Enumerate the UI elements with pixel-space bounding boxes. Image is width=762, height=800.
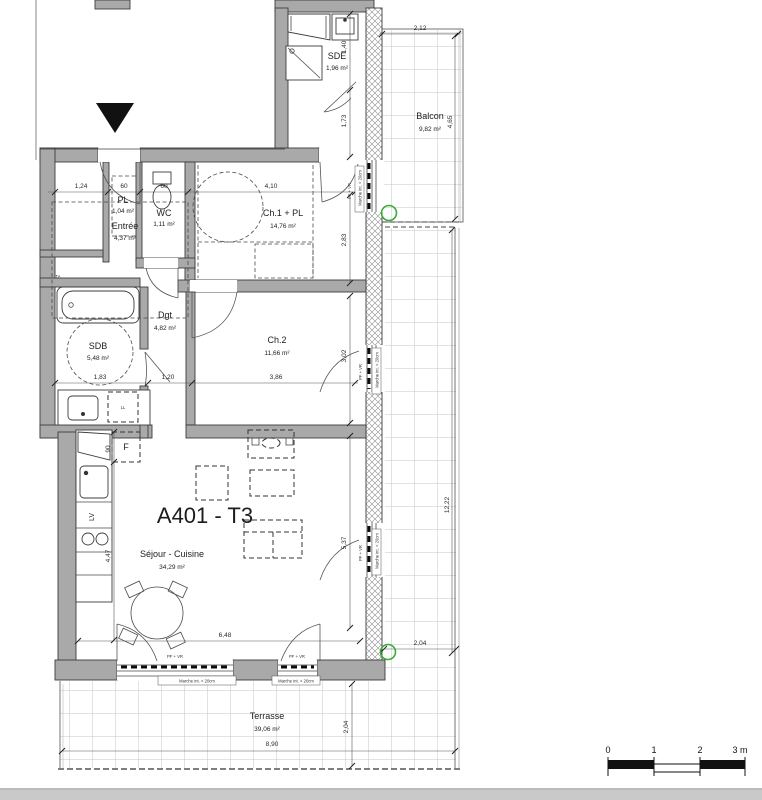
svg-text:Marche int. < 20cm: Marche int. < 20cm	[358, 170, 363, 206]
dimension-label: 6,48	[219, 632, 232, 639]
shower	[286, 46, 322, 80]
wc-door	[146, 268, 178, 298]
room-sdb: SDB 5,48 m²	[87, 341, 110, 362]
window-type-label: PF + VR	[289, 654, 305, 659]
dimension-label: 1,83	[94, 374, 107, 381]
ch2-french-window-swing	[320, 351, 359, 392]
svg-text:SDB: SDB	[89, 341, 108, 351]
svg-text:5,48 m²: 5,48 m²	[87, 355, 110, 362]
scale-label: 0	[605, 745, 610, 755]
dimension-label: 2,12	[414, 25, 427, 32]
dimension-label: 60	[160, 183, 168, 190]
room-wc: WC 1,11 m²	[153, 208, 175, 228]
dimension-label: 1,20	[162, 374, 175, 381]
sdb-washbasin	[58, 390, 150, 425]
step-label: Marche int. < 20cm	[272, 676, 320, 685]
svg-text:14,76 m²: 14,76 m²	[270, 223, 296, 230]
dimension-label: 4,65	[447, 115, 454, 128]
scale-label: 3 m	[732, 745, 747, 755]
entrance-arrow-icon	[96, 103, 134, 133]
dimension-label: 12,22	[444, 496, 451, 513]
dimension-label: 4,10	[265, 183, 278, 190]
armchair	[196, 466, 228, 500]
step-label: Marche int. < 20cm	[355, 166, 364, 212]
svg-text:Ch.2: Ch.2	[267, 335, 286, 345]
scale-bar: 0 1 2 3 m	[605, 745, 747, 776]
svg-text:1,11 m²: 1,11 m²	[153, 221, 175, 228]
svg-text:Ch.1 + PL: Ch.1 + PL	[263, 208, 303, 218]
dimension-label: 2,04	[343, 720, 350, 733]
ch1-turning-circle	[193, 172, 263, 242]
dimension-label: 60	[120, 183, 128, 190]
dimension-label: 5,37	[341, 536, 348, 549]
svg-text:1,04 m²: 1,04 m²	[112, 208, 135, 215]
page-footer-strip	[0, 789, 762, 800]
page-title: A401 - T3	[157, 503, 253, 528]
svg-text:Marche int. < 20cm: Marche int. < 20cm	[375, 352, 380, 388]
scale-label: 1	[651, 745, 656, 755]
insulated-wall	[366, 8, 382, 678]
svg-text:Marche int. < 20cm: Marche int. < 20cm	[375, 533, 380, 569]
dimension-label: 2,04	[414, 640, 427, 647]
toilet	[153, 172, 171, 209]
room-sejour: Séjour - Cuisine 34,29 m²	[140, 549, 204, 571]
window-type-label: PF + VR	[167, 654, 183, 659]
apartment-title: A401 - T3	[157, 503, 253, 528]
dimension-label: 3,02	[341, 349, 348, 362]
window-type-label: PF + VR	[358, 364, 363, 380]
dimension-label: 90	[105, 445, 112, 453]
floor-plan: 1,24 60 60 4,10 2,83 1,40 1,73 2,12 4,65…	[0, 0, 762, 800]
washing-machine-label: LL	[121, 405, 126, 410]
svg-text:WC: WC	[157, 208, 172, 218]
dimension-label: 3,86	[270, 374, 283, 381]
dimension-label: 1,73	[341, 114, 348, 127]
svg-text:Terrasse: Terrasse	[250, 711, 285, 721]
dimension-label: 2,83	[341, 233, 348, 246]
window-ch1	[364, 160, 384, 212]
svg-text:Dgt: Dgt	[158, 310, 173, 320]
svg-text:4,82 m²: 4,82 m²	[154, 325, 177, 332]
svg-text:1,96 m²: 1,96 m²	[326, 65, 349, 72]
ch1-bed	[255, 244, 313, 278]
svg-text:9,82 m²: 9,82 m²	[419, 126, 442, 133]
electrical-panel-label: TA	[55, 274, 60, 279]
svg-text:39,06 m²: 39,06 m²	[254, 726, 280, 733]
ch2-door	[192, 292, 237, 338]
sde-cabinet	[288, 14, 330, 40]
room-sde: SDE 1,96 m²	[326, 51, 349, 72]
room-ch1: Ch.1 + PL 14,76 m²	[263, 208, 303, 230]
svg-text:PL: PL	[117, 195, 128, 205]
sde-door	[324, 82, 356, 112]
room-entree: Entrée 4,37 m²	[112, 221, 139, 242]
step-label: Marche int. < 20cm	[158, 676, 236, 685]
fridge-label: F	[123, 442, 129, 452]
dimension-label: 8,90	[266, 741, 279, 748]
sejour-right-french-window-swing	[320, 540, 359, 580]
svg-text:Marche int. < 20cm: Marche int. < 20cm	[179, 679, 215, 684]
room-dgt: Dgt 4,82 m²	[154, 310, 177, 332]
svg-text:Entrée: Entrée	[112, 221, 139, 231]
step-label: Marche int. < 20cm	[372, 348, 381, 394]
floor-plan-page: 1,24 60 60 4,10 2,83 1,40 1,73 2,12 4,65…	[0, 0, 762, 800]
room-pl: PL 1,04 m²	[112, 195, 135, 215]
svg-text:Marche int. < 20cm: Marche int. < 20cm	[278, 679, 314, 684]
window-type-label: PF + VR	[358, 545, 363, 561]
scale-label: 2	[697, 745, 702, 755]
sde-washbasin	[332, 14, 358, 40]
svg-text:11,66 m²: 11,66 m²	[264, 350, 290, 357]
svg-text:4,37 m²: 4,37 m²	[114, 235, 137, 242]
dimension-label: 4,47	[105, 549, 112, 562]
step-label: Marche int. < 20cm	[372, 529, 381, 575]
dimension-label: 1,24	[75, 183, 88, 190]
svg-text:34,29 m²: 34,29 m²	[159, 564, 185, 571]
room-ch2: Ch.2 11,66 m²	[264, 335, 290, 357]
round-table	[119, 581, 188, 649]
dishwasher-label: LV	[89, 513, 96, 521]
svg-text:Balcon: Balcon	[416, 111, 444, 121]
window-type-label: PF + VR	[347, 183, 352, 199]
svg-text:SDE: SDE	[328, 51, 347, 61]
low-table	[250, 470, 294, 496]
svg-text:Séjour - Cuisine: Séjour - Cuisine	[140, 549, 204, 559]
